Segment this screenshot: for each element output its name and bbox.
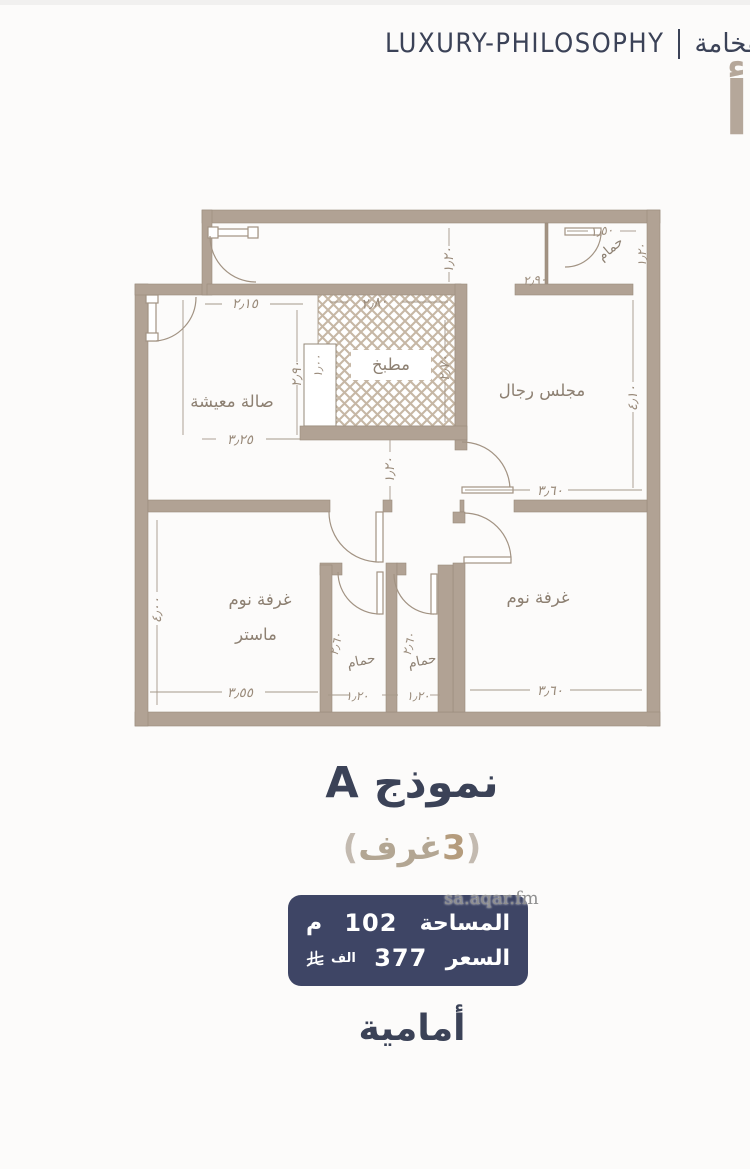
dim-bath2-height: ٢٫٦٠ (400, 631, 419, 657)
room-label-kitchen: مطبخ (372, 355, 410, 375)
floor-plan-svg: صالة معيشة مطبخ مجلس رجال حمام غرفة نوم … (130, 200, 670, 735)
price-value: 377 (374, 944, 427, 972)
majlis-door (462, 442, 513, 493)
dim-majlis-width: ٣٫٦٠ (537, 483, 563, 499)
orientation-label: أمامية (212, 1008, 612, 1049)
top-edge-strip (0, 0, 750, 5)
area-unit: م (306, 911, 322, 936)
brand-name-ar: قة الفخامة (694, 29, 750, 59)
bath2-door (394, 574, 437, 614)
dim-bathtop-side: ١٫٢٠ (635, 243, 649, 266)
dim-living-width: ٣٫٢٥ (227, 432, 254, 448)
dim-bathtop-width: ١٫٥٠ (589, 223, 614, 239)
model-title: نموذج A (212, 758, 612, 808)
price-unit: الف (331, 951, 356, 966)
floor-plan: صالة معيشة مطبخ مجلس رجال حمام غرفة نوم … (130, 200, 670, 735)
area-value: 102 (344, 909, 397, 937)
watermark: sa.aqar.fm (444, 888, 539, 909)
rooms-word: غرف (358, 828, 442, 868)
rooms-count: 3 (442, 828, 466, 868)
area-row: المساحة 102 م (306, 909, 510, 937)
dim-bathtop-wall: ٢٫٩٠ (523, 272, 547, 288)
bedroom-door (464, 513, 511, 563)
price-row: السعر 377 الف (306, 944, 510, 972)
entrance-door (208, 227, 258, 282)
room-label-master-2: ماستر (234, 625, 277, 645)
header-divider (678, 29, 680, 59)
area-label: المساحة (420, 911, 510, 936)
rooms-count-line: (3غرف) (212, 828, 612, 868)
dim-living-top: ٢٫١٥ (232, 296, 259, 312)
brand-name-en: LUXURY-PHILOSOPHY (385, 28, 664, 59)
header: LUXURY-PHILOSOPHY قة الفخامة (385, 28, 750, 59)
living-door (146, 295, 196, 341)
paren-open: ( (466, 828, 482, 868)
price-label: السعر (446, 946, 510, 971)
dim-hall-width: ١٫٢٠ (382, 457, 398, 483)
dim-kitchen-side: ٢٫٧٠ (437, 355, 453, 381)
bath1-door (338, 572, 383, 614)
dim-bath1-width: ١٫٢٠ (345, 689, 368, 703)
dim-majlis-height: ٤٫١٠ (625, 385, 641, 411)
price-unit-wrap: الف (306, 949, 356, 968)
saudi-riyal-icon (306, 949, 325, 968)
paren-close: ) (343, 828, 359, 868)
dim-living-height: ٢٫٩٠ (289, 361, 305, 387)
dim-strip-height: ١٫٢٠ (441, 247, 457, 273)
dim-bath2-width: ١٫٢٠ (406, 689, 429, 703)
side-letter-alef: أ (724, 72, 749, 146)
room-label-master-1: غرفة نوم (228, 590, 291, 610)
room-label-majlis: مجلس رجال (499, 381, 585, 401)
room-label-living: صالة معيشة (190, 392, 274, 411)
dim-master-width: ٣٫٥٥ (227, 685, 254, 701)
room-label-bedroom: غرفة نوم (506, 588, 569, 608)
dim-kitchen-col: ١٫٠٠ (311, 354, 325, 377)
master-door (329, 512, 383, 562)
room-label-bath1: حمام (346, 650, 377, 672)
dim-bedroom-width: ٣٫٦٠ (537, 683, 563, 699)
dim-master-height: ٤٫٠٠ (149, 597, 165, 623)
